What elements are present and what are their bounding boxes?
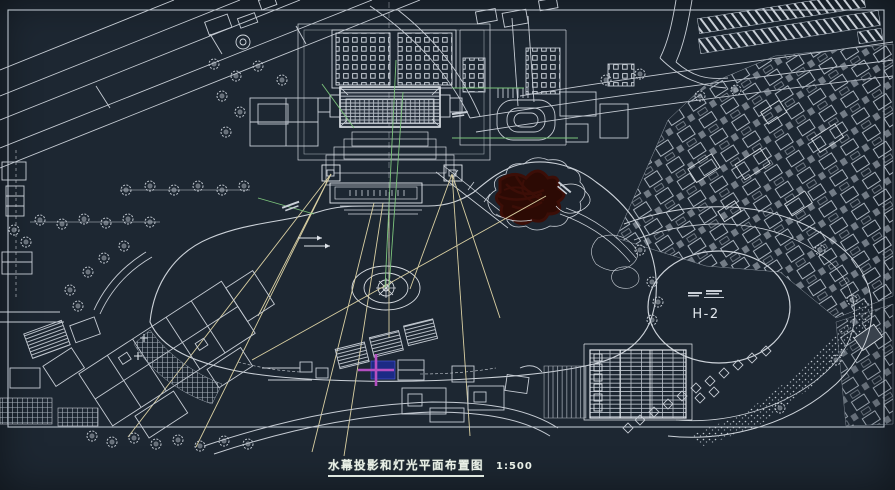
cad-sheet: H-2 水幕投影和灯光平面布置图 1:500	[0, 0, 895, 490]
temple-complex	[236, 24, 490, 214]
linework	[0, 0, 893, 465]
drawing-scale: 1:500	[496, 461, 533, 472]
southwest-corner	[0, 309, 253, 451]
direction-arrows	[298, 236, 330, 249]
west-shore	[2, 150, 250, 314]
title-block: 水幕投影和灯光平面布置图 1:500	[328, 457, 533, 477]
red-tree-cluster	[496, 171, 564, 224]
island-red-trees	[488, 158, 590, 230]
south-shore-buildings	[204, 319, 586, 454]
plaza-label: H-2	[692, 307, 719, 322]
drawing-title: 水幕投影和灯光平面布置图	[328, 457, 484, 477]
grid-building	[584, 344, 692, 420]
west-garden	[217, 91, 318, 146]
site-plan-canvas[interactable]: H-2	[0, 0, 895, 490]
east-garden	[460, 30, 566, 145]
light-beams	[128, 174, 546, 456]
promenade-hatch	[134, 330, 222, 404]
